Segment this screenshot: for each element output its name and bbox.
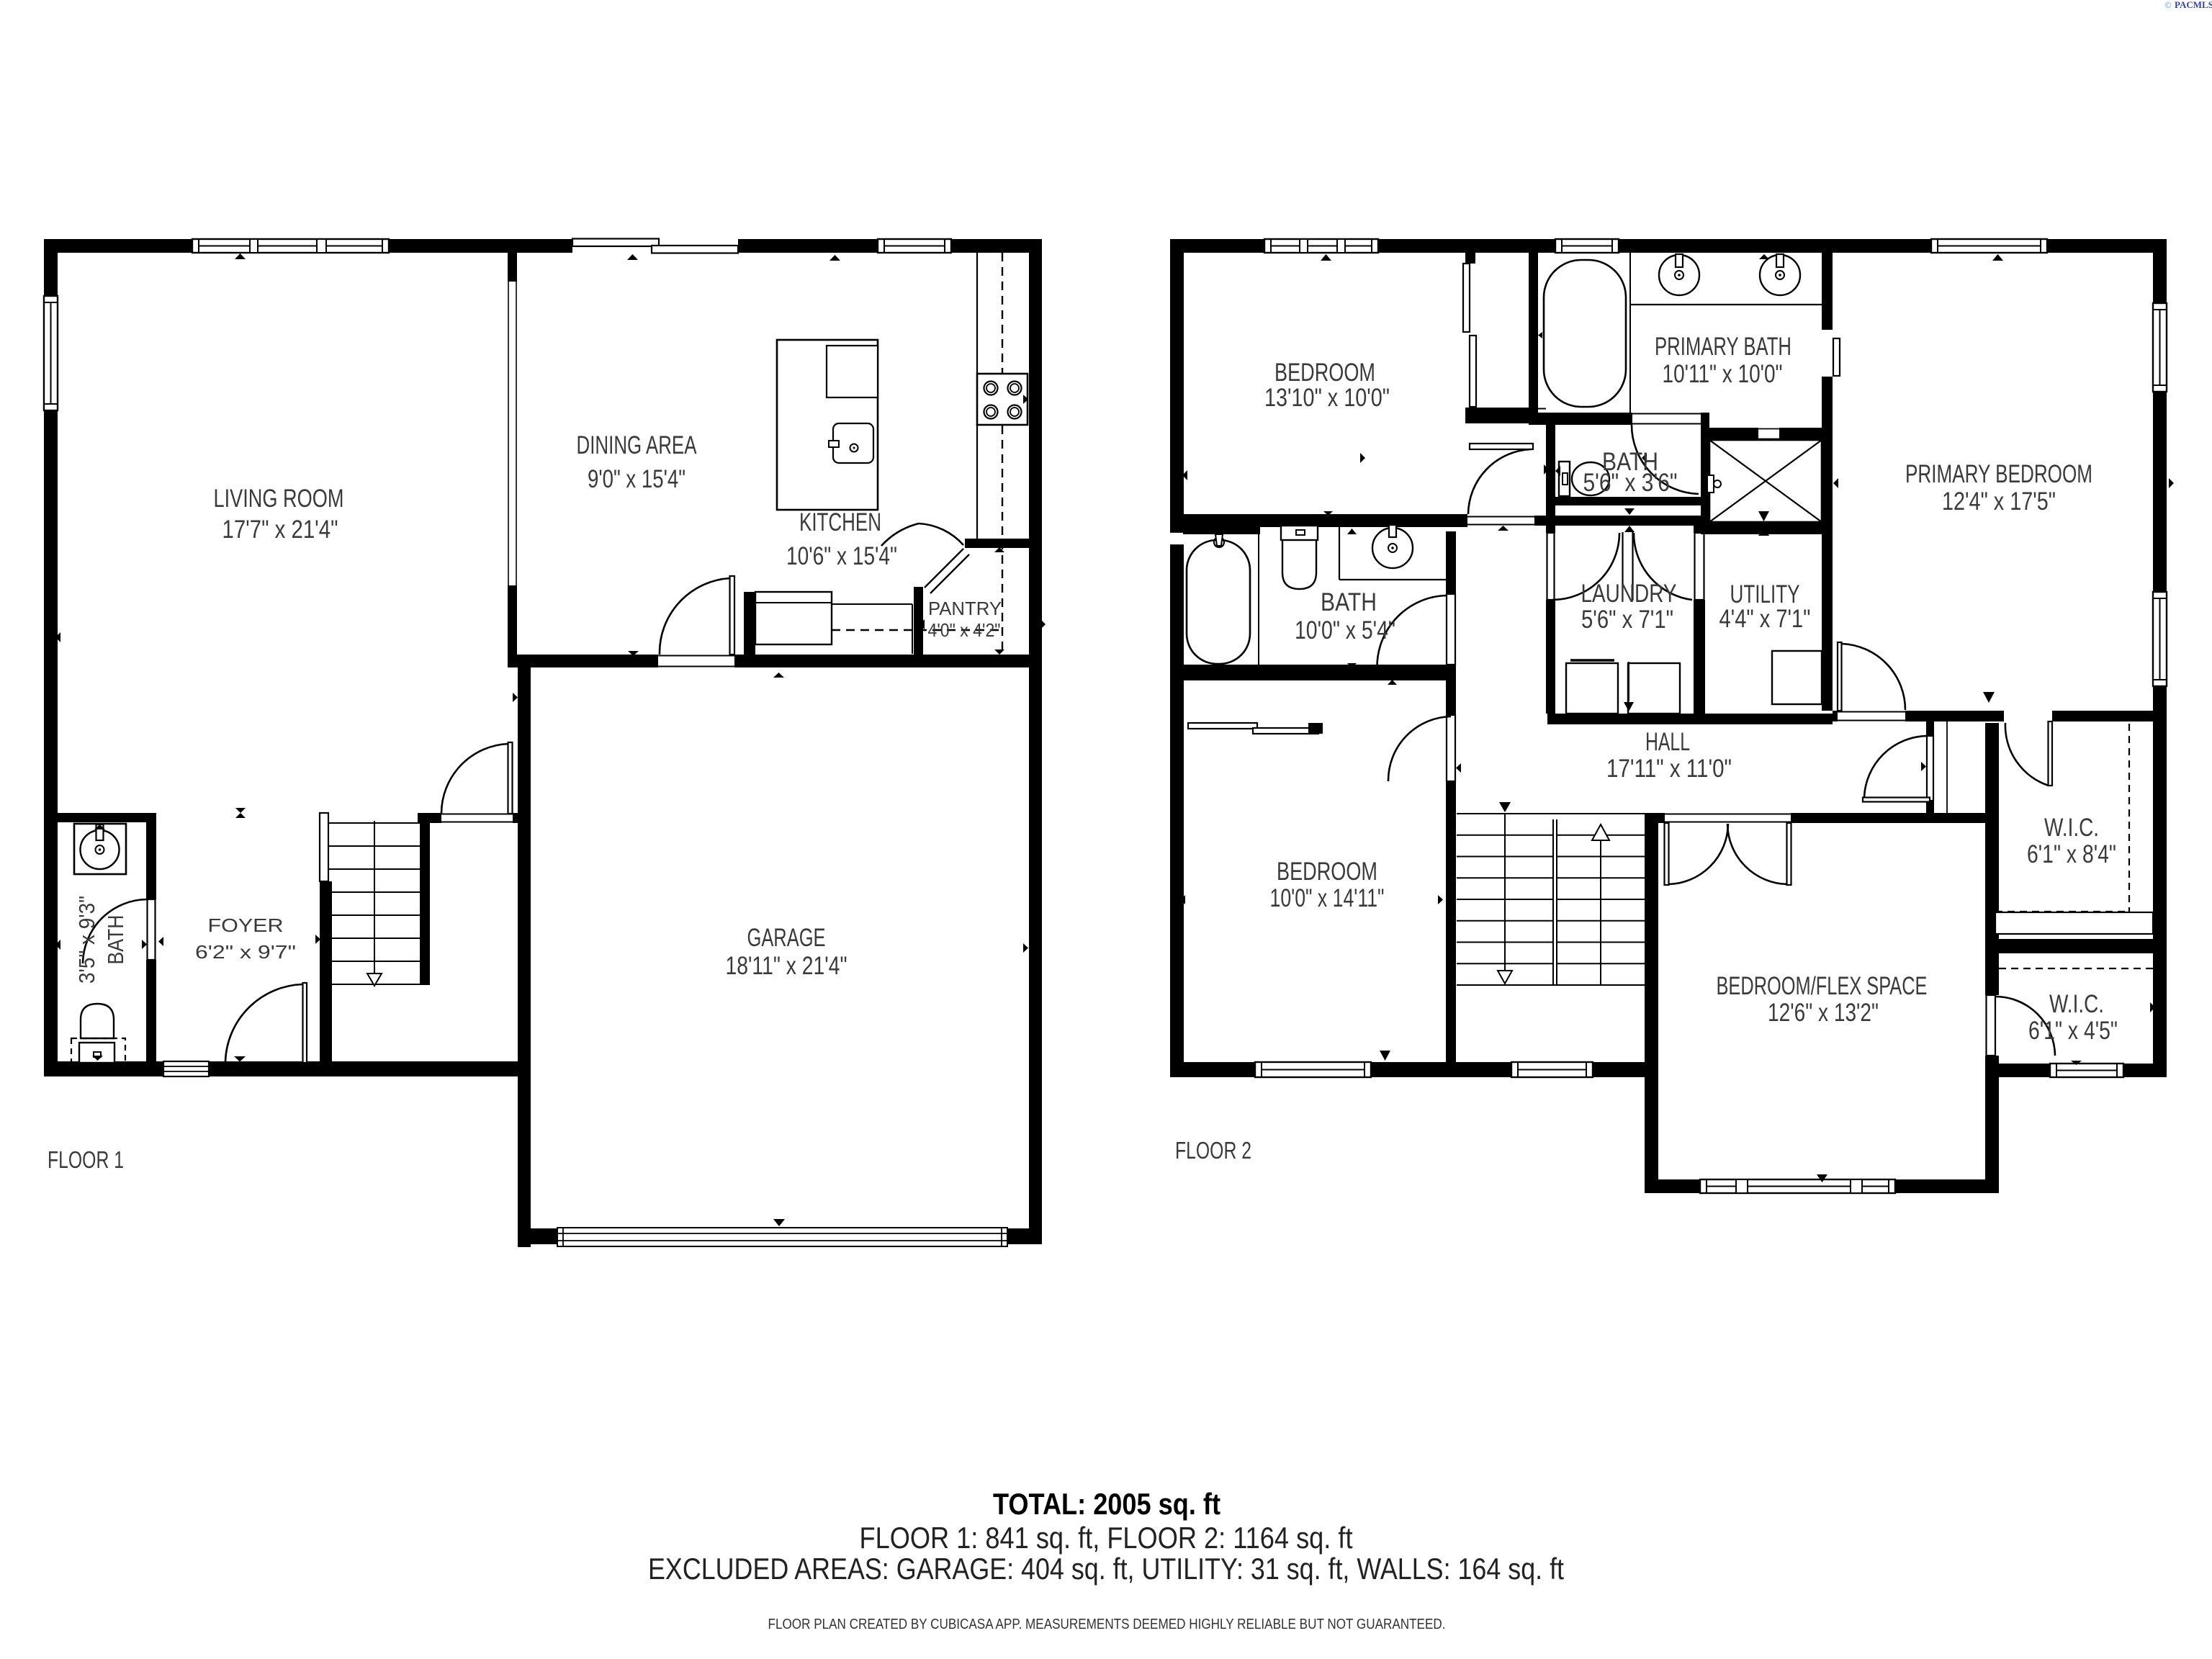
- svg-text:W.I.C.: W.I.C.: [2049, 990, 2104, 1018]
- svg-text:12'4" x 17'5": 12'4" x 17'5": [1942, 487, 2056, 516]
- svg-text:FLOOR 1: FLOOR 1: [48, 1146, 124, 1173]
- svg-text:BEDROOM/FLEX SPACE: BEDROOM/FLEX SPACE: [1717, 972, 1928, 1000]
- svg-text:BEDROOM: BEDROOM: [1277, 858, 1377, 886]
- svg-text:4'0" x 4'2": 4'0" x 4'2": [928, 619, 1001, 641]
- svg-text:©: ©: [2164, 0, 2172, 10]
- svg-text:5'6" x 7'1": 5'6" x 7'1": [1581, 606, 1673, 634]
- svg-text:10'0" x 14'11": 10'0" x 14'11": [1270, 884, 1385, 912]
- svg-text:10'6" x 15'4": 10'6" x 15'4": [786, 542, 897, 570]
- svg-text:6'1" x 4'5": 6'1" x 4'5": [2028, 1017, 2118, 1045]
- svg-text:PANTRY: PANTRY: [928, 598, 1002, 619]
- svg-text:BATH: BATH: [103, 915, 128, 965]
- svg-text:18'11" x 21'4": 18'11" x 21'4": [726, 952, 848, 980]
- svg-text:12'6" x 13'2": 12'6" x 13'2": [1768, 999, 1879, 1027]
- svg-text:17'7" x 21'4": 17'7" x 21'4": [222, 516, 338, 544]
- svg-text:PRIMARY BEDROOM: PRIMARY BEDROOM: [1905, 460, 2092, 488]
- svg-text:17'11" x 11'0": 17'11" x 11'0": [1606, 755, 1732, 783]
- svg-text:6'2" x 9'7": 6'2" x 9'7": [195, 941, 296, 963]
- svg-text:5'6" x 3'6": 5'6" x 3'6": [1583, 469, 1678, 497]
- svg-text:W.I.C.: W.I.C.: [2044, 814, 2099, 842]
- svg-text:LIVING ROOM: LIVING ROOM: [214, 485, 344, 513]
- svg-text:DINING AREA: DINING AREA: [577, 431, 697, 459]
- svg-text:6'1" x 8'4": 6'1" x 8'4": [2027, 840, 2116, 868]
- svg-text:PACMLS: PACMLS: [2175, 0, 2212, 10]
- svg-text:9'0" x 15'4": 9'0" x 15'4": [588, 465, 685, 493]
- svg-text:FLOOR PLAN CREATED BY CUBICASA: FLOOR PLAN CREATED BY CUBICASA APP. MEAS…: [768, 1617, 1446, 1632]
- svg-text:10'0" x 5'4": 10'0" x 5'4": [1295, 616, 1395, 644]
- svg-text:FOYER: FOYER: [208, 914, 284, 936]
- svg-text:BATH: BATH: [1321, 588, 1377, 616]
- svg-text:LAUNDRY: LAUNDRY: [1581, 580, 1677, 608]
- svg-text:TOTAL: 2005 sq. ft: TOTAL: 2005 sq. ft: [993, 1487, 1220, 1521]
- svg-text:10'11" x 10'0": 10'11" x 10'0": [1663, 360, 1783, 388]
- svg-text:BEDROOM: BEDROOM: [1274, 359, 1375, 387]
- svg-text:GARAGE: GARAGE: [747, 924, 826, 952]
- svg-text:HALL: HALL: [1645, 728, 1690, 756]
- svg-text:KITCHEN: KITCHEN: [799, 508, 881, 536]
- svg-text:FLOOR 1: 841 sq. ft, FLOOR 2:: FLOOR 1: 841 sq. ft, FLOOR 2: 1164 sq. f…: [860, 1521, 1353, 1555]
- svg-text:13'10" x 10'0": 13'10" x 10'0": [1264, 384, 1390, 412]
- svg-text:PRIMARY BATH: PRIMARY BATH: [1655, 333, 1791, 361]
- svg-text:FLOOR 2: FLOOR 2: [1175, 1137, 1251, 1164]
- svg-text:3'5" x 9'3": 3'5" x 9'3": [74, 896, 99, 984]
- svg-text:EXCLUDED AREAS: GARAGE: 404 sq: EXCLUDED AREAS: GARAGE: 404 sq. ft, UTIL…: [648, 1552, 1564, 1586]
- svg-text:4'4" x 7'1": 4'4" x 7'1": [1719, 605, 1811, 633]
